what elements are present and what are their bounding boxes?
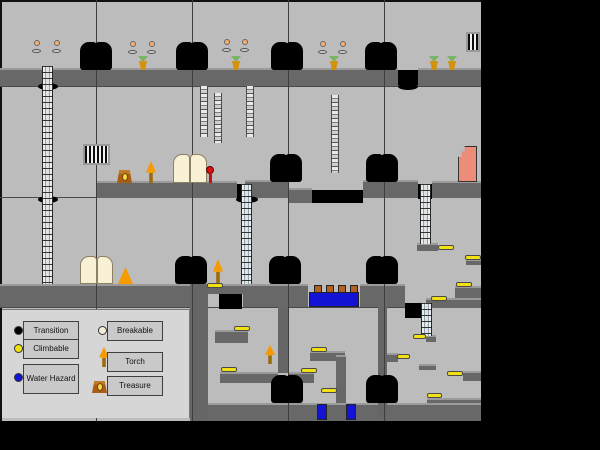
climbable-marker [431, 296, 447, 301]
legend-panel: Transition Climbable Water Hazard Breaka… [2, 309, 190, 418]
grate [83, 144, 110, 165]
transition-blob [366, 375, 398, 403]
water-hazard [309, 292, 359, 307]
chain [331, 95, 339, 173]
platform [417, 243, 438, 251]
platform [360, 284, 405, 307]
chain [214, 93, 222, 143]
transition-blob [175, 256, 207, 284]
legend-label: Transition [34, 326, 69, 335]
climbable-marker [456, 282, 472, 287]
legend-label: Climbable [33, 344, 69, 353]
climbable-swatch [14, 344, 23, 353]
breakable-book [173, 154, 207, 183]
breakable-swatch [98, 326, 107, 335]
transition-blob [366, 154, 398, 182]
chain [200, 86, 208, 137]
water-hazard-swatch [14, 373, 23, 382]
climbable-marker [465, 255, 481, 260]
legend-label: Water Hazard [26, 374, 75, 383]
ladder [420, 184, 431, 244]
transition-blob [270, 154, 302, 182]
candle [52, 40, 62, 53]
platform [288, 188, 312, 203]
plant-vase [231, 56, 241, 70]
transition-blob [176, 42, 208, 70]
plant-vase [447, 56, 457, 70]
wall [378, 307, 387, 421]
plant-vase [138, 56, 148, 70]
outside-map-bottom [0, 421, 600, 450]
legend-label: Treasure [119, 381, 151, 390]
platform [220, 372, 278, 383]
water-hazard [317, 404, 327, 420]
grate [466, 32, 480, 52]
bridge-post [314, 285, 322, 293]
transition-hole [398, 83, 418, 90]
platform [463, 371, 481, 381]
candle [240, 39, 250, 52]
climbable-marker [207, 283, 223, 288]
outside-map-right [481, 0, 600, 450]
treasure-chest-icon [92, 381, 107, 393]
legend-label: Torch [125, 357, 145, 366]
climbable-marker [221, 367, 237, 372]
climbable-marker [301, 368, 317, 373]
platform [426, 335, 436, 342]
platform [243, 284, 308, 307]
platform [336, 355, 346, 405]
water-hazard [346, 404, 356, 420]
transition-blob [271, 42, 303, 70]
climbable-marker [427, 393, 442, 398]
wall [278, 307, 288, 373]
legend-label: Breakable [117, 326, 153, 335]
platform [97, 181, 237, 198]
platform [215, 330, 248, 343]
platform [432, 181, 481, 198]
bridge-post [338, 285, 346, 293]
candle [32, 40, 42, 53]
platform [0, 284, 190, 307]
breakable-book [80, 256, 113, 284]
lever [206, 166, 214, 183]
platform [419, 364, 436, 370]
climbable-marker [413, 334, 426, 339]
climbable-marker [438, 245, 454, 250]
platform [205, 403, 481, 421]
ladder [42, 66, 53, 284]
legend-item-water-hazard: Water Hazard [23, 364, 79, 394]
candle [222, 39, 232, 52]
pit-opening [219, 294, 242, 309]
legend-item-treasure: Treasure [107, 376, 163, 396]
treasure-chest [117, 170, 132, 183]
platform [455, 286, 481, 298]
climbable-marker [321, 388, 337, 393]
platform [418, 68, 481, 86]
plant-vase [329, 56, 339, 70]
climbable-marker [311, 347, 327, 352]
pit-opening [312, 190, 363, 203]
ladder [241, 184, 252, 284]
candle [147, 41, 157, 54]
transition-blob [365, 42, 397, 70]
candle [318, 41, 328, 54]
level-map-viewer: Transition Climbable Water Hazard Breaka… [0, 0, 600, 450]
transition-blob [271, 375, 303, 403]
transition-blob [366, 256, 398, 284]
legend-item-transition: Transition [23, 321, 79, 341]
platform [363, 180, 418, 198]
climbable-marker [447, 371, 463, 376]
platform [0, 68, 398, 86]
climbable-marker [234, 326, 250, 331]
legend-item-torch: Torch [107, 352, 163, 372]
bridge-post [326, 285, 334, 293]
plant-vase [429, 56, 439, 70]
candle [128, 41, 138, 54]
transition-swatch [14, 326, 23, 335]
transition-blob [269, 256, 301, 284]
bridge-post [350, 285, 358, 293]
legend-item-breakable: Breakable [107, 321, 163, 341]
legend-item-climbable: Climbable [23, 339, 79, 359]
transition-blob [80, 42, 112, 70]
chain [246, 86, 254, 137]
ladder [421, 303, 432, 336]
candle [338, 41, 348, 54]
climbable-marker [397, 354, 410, 359]
